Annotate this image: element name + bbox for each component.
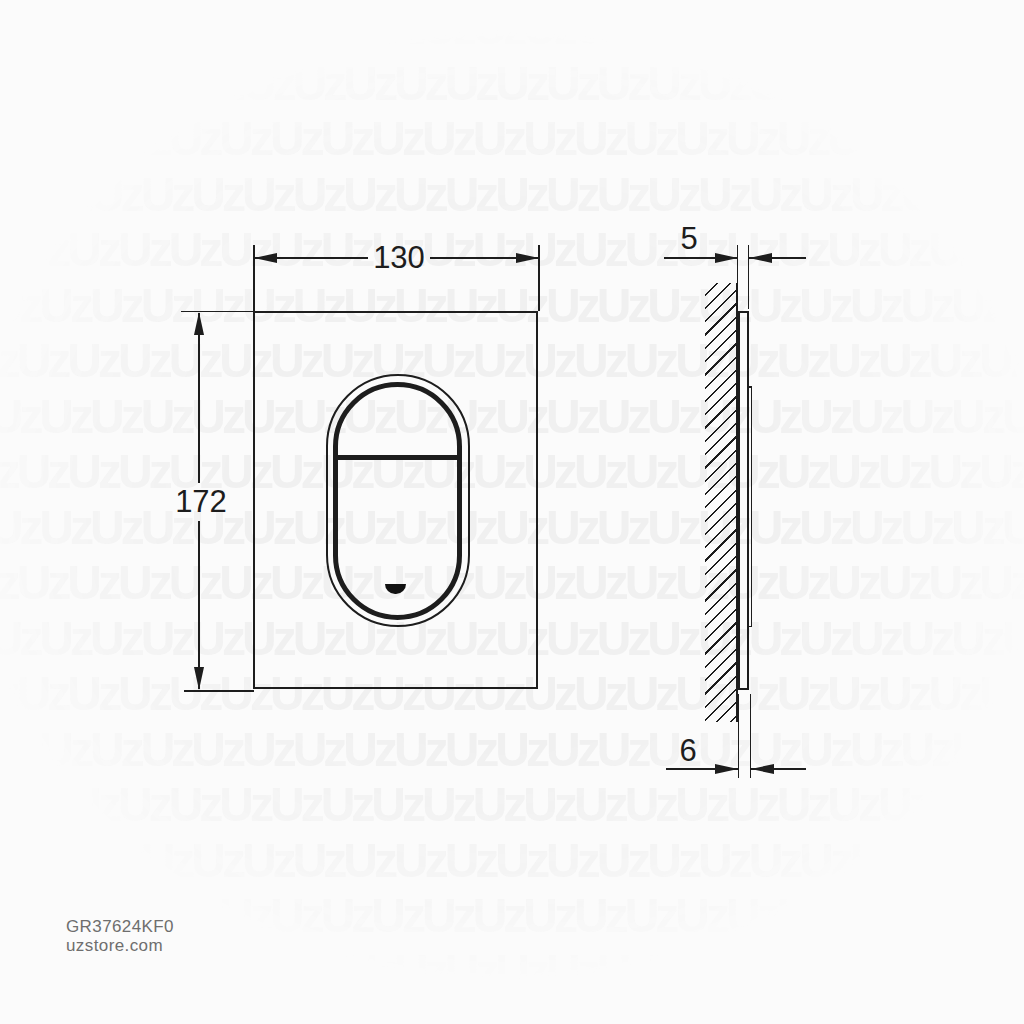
- arrowhead-thickness-right-icon: [749, 253, 772, 263]
- product-sku-text: GR37624KF0: [66, 918, 174, 937]
- side-button-bulge-bottom: [749, 626, 753, 628]
- thickness-dimension-label: 5: [680, 221, 697, 257]
- technical-drawing-canvas: UzUzUzUzUzUzUzUzUzUzUzUzUzUzUzUzUzUzUzUz…: [0, 0, 1024, 1024]
- dimension-line-height-bottom: [198, 521, 200, 689]
- website-text: uzstore.com: [66, 937, 174, 956]
- height-dimension-label: 172: [175, 484, 227, 520]
- arrowhead-depth-left-icon: [715, 764, 738, 774]
- arrowhead-thickness-left-icon: [715, 253, 738, 263]
- side-button-bulge-top: [749, 386, 753, 388]
- depth-dimension-label: 6: [679, 733, 696, 769]
- watermark-row: UzUzUzUzUzUzUzUzUzUzUzUzUzUzUzUzUzUzUzUz…: [0, 56, 1024, 112]
- dimension-line-height-top: [198, 313, 200, 483]
- extension-line-height-bottom: [184, 690, 254, 691]
- watermark-row: UzUzUzUzUzUzUzUzUzUzUzUzUzUzUzUzUzUzUzUz…: [0, 833, 1024, 889]
- watermark-row: UzUzUzUzUzUzUzUzUzUzUzUzUzUzUzUzUzUzUzUz…: [0, 222, 1024, 278]
- extension-line-thickness-left: [737, 245, 738, 309]
- watermark-row: UzUzUzUzUzUzUzUzUzUzUzUzUzUzUzUzUzUzUzUz…: [0, 0, 1024, 56]
- arrowhead-height-top-icon: [194, 312, 204, 335]
- arrowhead-width-left-icon: [254, 253, 277, 263]
- side-plate-profile: [738, 311, 749, 690]
- footer: GR37624KF0 uzstore.com: [66, 918, 174, 955]
- watermark-row: UzUzUzUzUzUzUzUzUzUzUzUzUzUzUzUzUzUzUzUz…: [0, 999, 1024, 1024]
- watermark-row: UzUzUzUzUzUzUzUzUzUzUzUzUzUzUzUzUzUzUzUz…: [0, 111, 1024, 167]
- wall-hatch: [705, 283, 736, 722]
- watermark-row: UzUzUzUzUzUzUzUzUzUzUzUzUzUzUzUzUzUzUzUz…: [0, 777, 1024, 833]
- arrowhead-depth-right-icon: [751, 764, 774, 774]
- side-button-bulge-line: [751, 386, 753, 627]
- arrowhead-width-right-icon: [516, 253, 539, 263]
- width-dimension-label: 130: [373, 240, 425, 276]
- arrowhead-height-bottom-icon: [194, 667, 204, 690]
- watermark-row: UzUzUzUzUzUzUzUzUzUzUzUzUzUzUzUzUzUzUzUz…: [0, 722, 1024, 778]
- extension-line-height-top: [181, 311, 253, 312]
- watermark-row: UzUzUzUzUzUzUzUzUzUzUzUzUzUzUzUzUzUzUzUz…: [0, 167, 1024, 223]
- button-divider-line: [338, 455, 457, 460]
